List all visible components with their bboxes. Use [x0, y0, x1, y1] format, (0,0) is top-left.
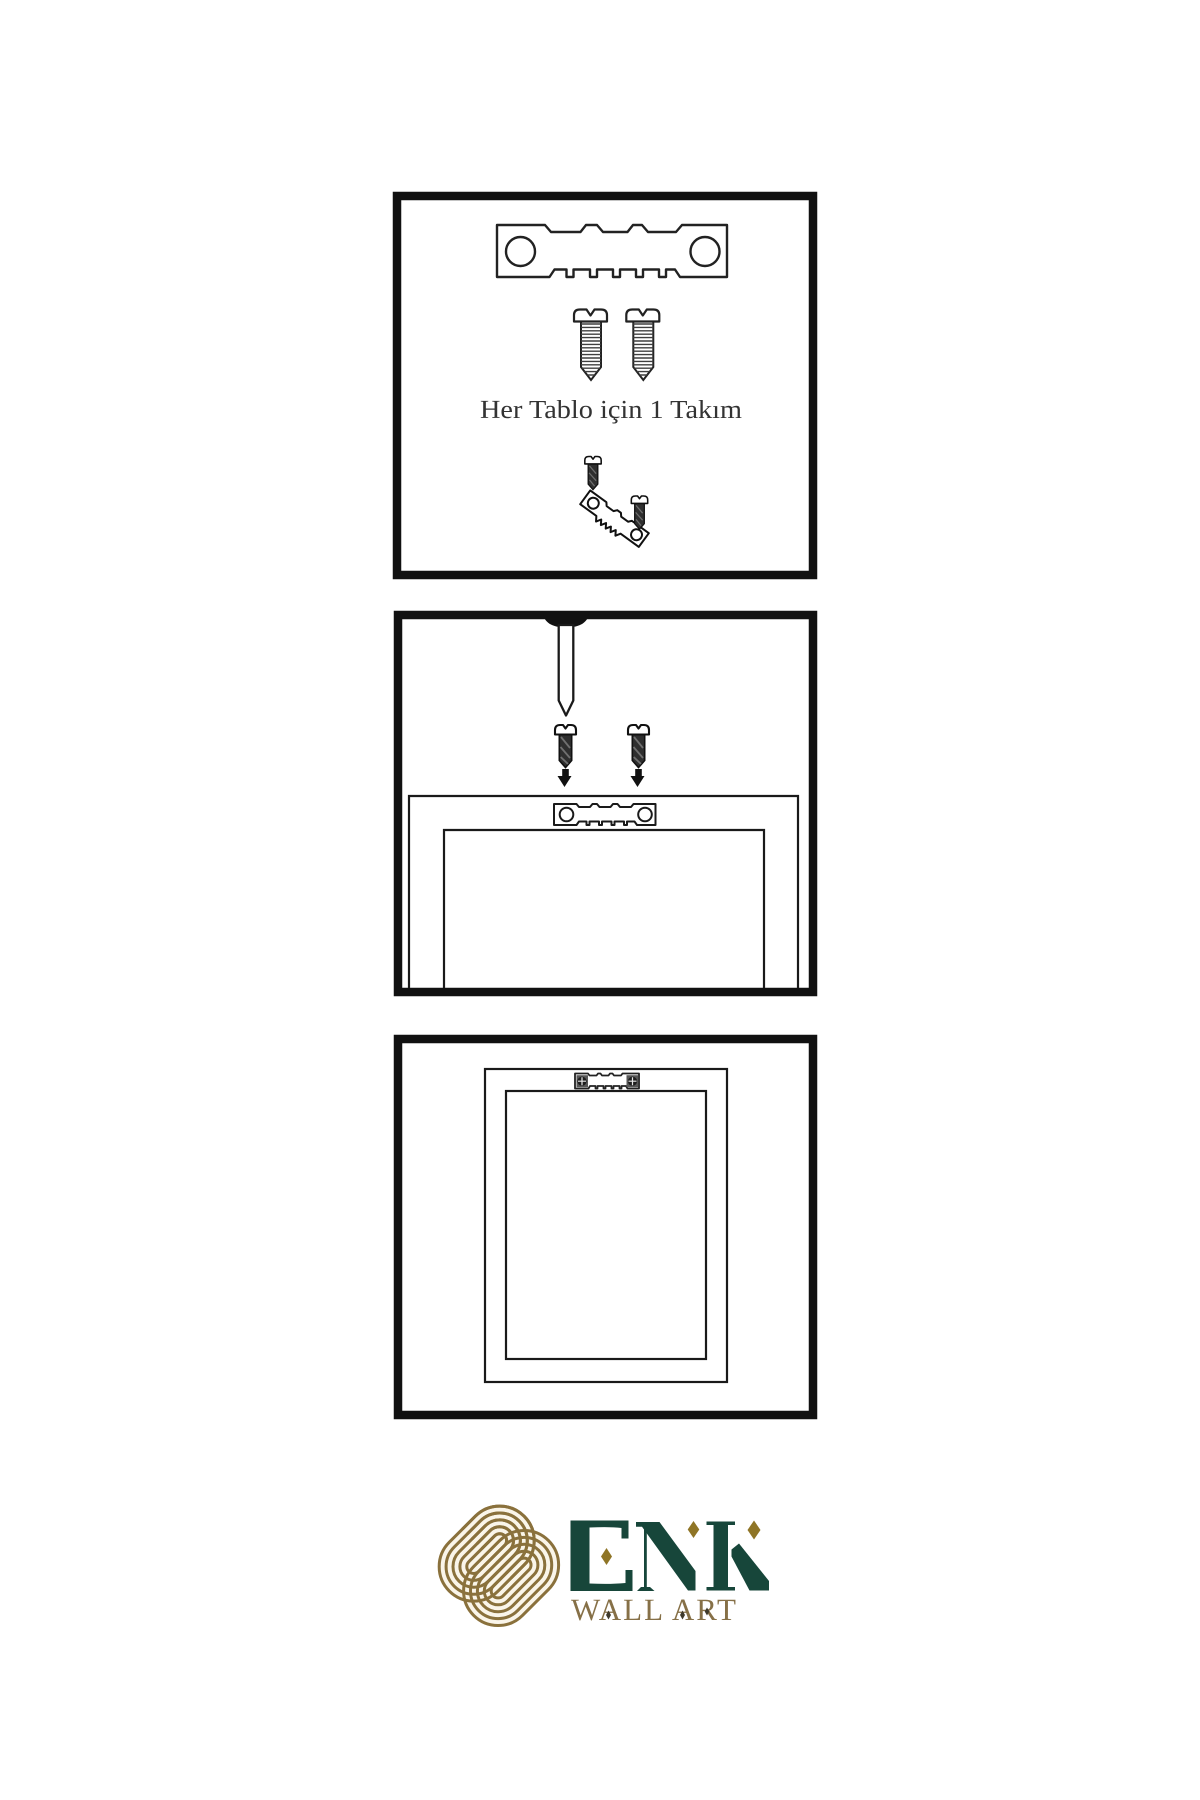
svg-text:Her Tablo için 1 Takım: Her Tablo için 1 Takım	[480, 395, 742, 424]
svg-text:WALL ART: WALL ART	[571, 1592, 736, 1627]
